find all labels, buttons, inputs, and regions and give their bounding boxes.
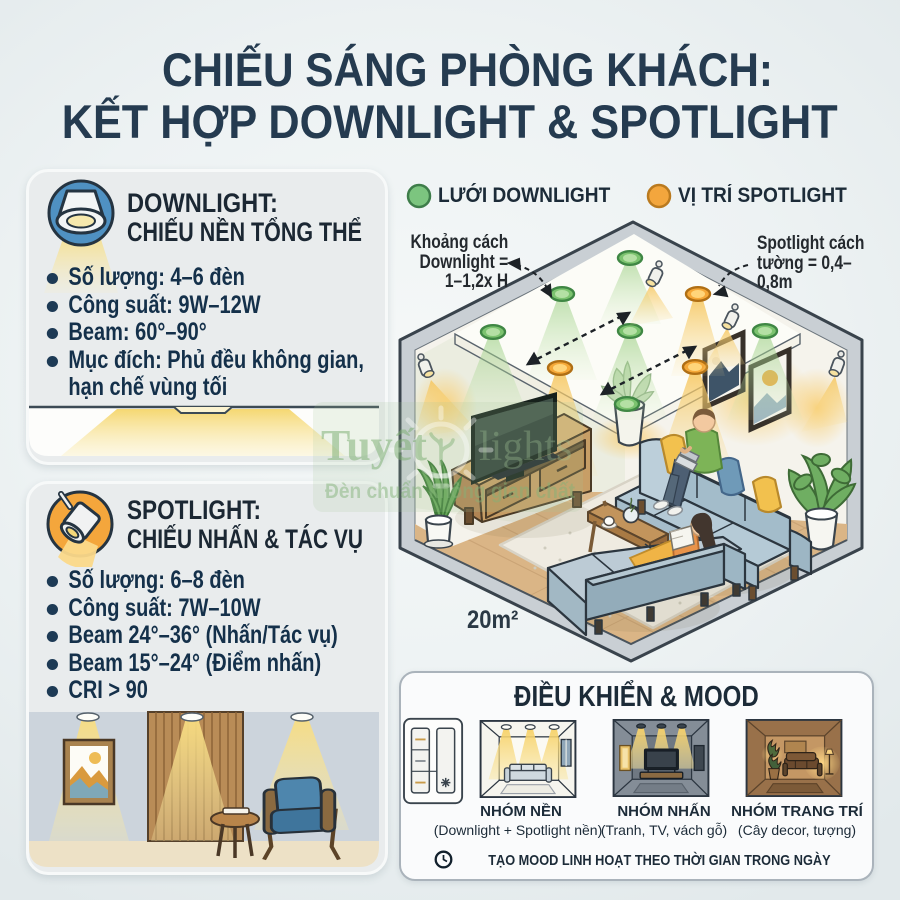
svg-text:Tuyết: Tuyết (321, 421, 427, 470)
svg-text:Đèn chuẩn không gian chất: Đèn chuẩn không gian chất (325, 480, 575, 503)
svg-text:lights: lights (479, 424, 572, 470)
